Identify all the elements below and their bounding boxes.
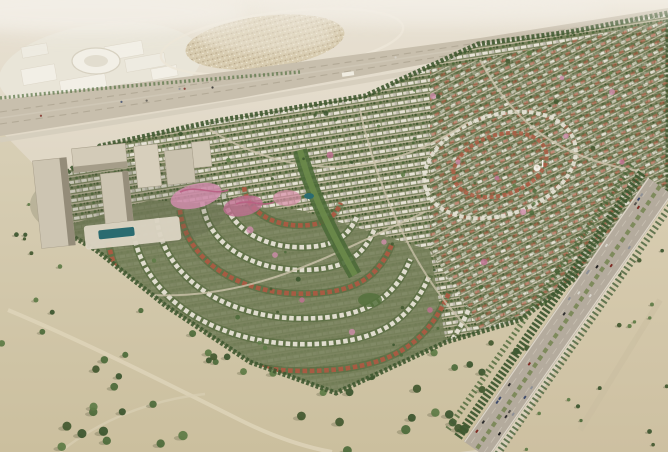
tree <box>33 298 38 303</box>
tree <box>400 353 403 356</box>
tree <box>122 352 128 358</box>
tree <box>532 189 536 193</box>
tree <box>413 137 417 141</box>
tree <box>433 269 436 272</box>
ring-building-courtyard <box>84 55 108 67</box>
blossom-patch <box>455 159 460 164</box>
tree <box>609 71 612 74</box>
tree <box>27 203 30 206</box>
blossom-patch <box>246 226 253 233</box>
tree <box>598 386 602 390</box>
tree <box>567 398 571 402</box>
tree <box>651 443 655 447</box>
highway-car <box>211 86 213 88</box>
tree <box>178 431 187 440</box>
tree <box>622 108 626 112</box>
tree <box>23 233 27 237</box>
tree <box>235 315 240 320</box>
tree <box>401 306 405 310</box>
blossom-patch <box>430 93 436 99</box>
tree <box>576 404 580 408</box>
tree <box>401 173 405 177</box>
blossom-patch <box>520 209 526 215</box>
tree <box>179 132 183 136</box>
tree <box>226 158 231 163</box>
highway-car <box>184 88 186 90</box>
tree <box>525 448 528 451</box>
blossom-patch <box>563 133 569 139</box>
tree <box>413 89 416 92</box>
tree <box>505 59 510 64</box>
tree <box>138 308 143 313</box>
tree <box>23 237 26 240</box>
tree <box>445 410 454 419</box>
tree <box>77 429 86 438</box>
blossom-patch <box>349 329 355 335</box>
tree <box>116 373 122 379</box>
tree <box>152 258 156 262</box>
tree <box>431 408 440 417</box>
tree <box>224 354 231 361</box>
tree <box>436 327 439 330</box>
blossom-patch <box>560 76 564 80</box>
atmosphere <box>0 0 668 34</box>
tree <box>206 357 212 363</box>
tree <box>189 330 196 337</box>
community-pool <box>304 193 314 199</box>
highway-car <box>40 115 42 117</box>
tree <box>240 368 247 375</box>
tree <box>628 324 632 328</box>
blossom-patch <box>299 297 304 302</box>
tree <box>413 385 421 393</box>
tree <box>648 316 651 319</box>
highway-car <box>146 100 148 102</box>
tree <box>392 343 395 346</box>
tree <box>451 364 458 371</box>
tree <box>479 386 486 393</box>
tree <box>119 408 126 415</box>
tree <box>527 50 532 55</box>
tree <box>533 202 536 205</box>
tree <box>14 232 19 237</box>
tree <box>650 303 654 307</box>
tree <box>99 427 108 436</box>
tree <box>512 184 516 188</box>
park-blob <box>358 293 382 307</box>
tree <box>313 113 316 116</box>
tree <box>50 310 55 315</box>
blossom-patch <box>481 259 488 266</box>
tree <box>545 132 548 135</box>
tree <box>270 288 273 291</box>
tree <box>57 442 66 451</box>
tree <box>466 361 473 368</box>
tree <box>276 311 279 314</box>
tree <box>62 422 71 431</box>
tree <box>488 340 494 346</box>
tree <box>157 439 165 447</box>
tree <box>638 68 643 73</box>
tree <box>92 365 99 372</box>
tree <box>590 146 595 151</box>
tree <box>554 99 559 104</box>
tree <box>103 437 111 445</box>
highway-car <box>178 88 180 90</box>
blossom-patch <box>619 159 624 164</box>
scene-canvas <box>0 0 668 452</box>
tree <box>436 94 441 99</box>
aerial-render-image <box>0 0 668 452</box>
tree <box>334 118 337 121</box>
tree <box>39 329 45 335</box>
tree <box>617 323 622 328</box>
tree <box>549 105 552 108</box>
tree <box>377 125 380 128</box>
blossom-patch <box>495 176 500 181</box>
tree <box>296 277 301 282</box>
tree <box>537 412 541 416</box>
tree <box>149 401 156 408</box>
tree <box>263 346 267 350</box>
tree <box>90 403 98 411</box>
tree <box>579 419 582 422</box>
tree <box>335 418 344 427</box>
blossom-patch <box>609 89 615 95</box>
tree <box>110 383 118 391</box>
blossom-patch <box>272 252 278 258</box>
highway-car <box>394 56 396 58</box>
tree <box>633 320 636 323</box>
tree <box>271 177 274 180</box>
tree <box>284 251 287 254</box>
blossom-patch <box>427 307 433 313</box>
blossom-patch <box>327 152 334 159</box>
tree <box>408 414 416 422</box>
tree <box>391 242 394 245</box>
tree <box>479 285 483 289</box>
tree <box>58 264 62 268</box>
blossom-patch <box>381 239 386 244</box>
tree <box>101 356 108 363</box>
tree <box>323 111 328 116</box>
highway-car <box>120 101 122 103</box>
tree <box>29 251 33 255</box>
tree <box>401 425 410 434</box>
tree <box>474 182 477 185</box>
tree <box>297 412 306 421</box>
minaret <box>542 160 543 167</box>
tree <box>647 429 652 434</box>
tree <box>660 249 664 253</box>
tree <box>529 210 534 215</box>
tree <box>302 157 305 160</box>
tree <box>257 341 261 345</box>
tree <box>350 161 353 164</box>
